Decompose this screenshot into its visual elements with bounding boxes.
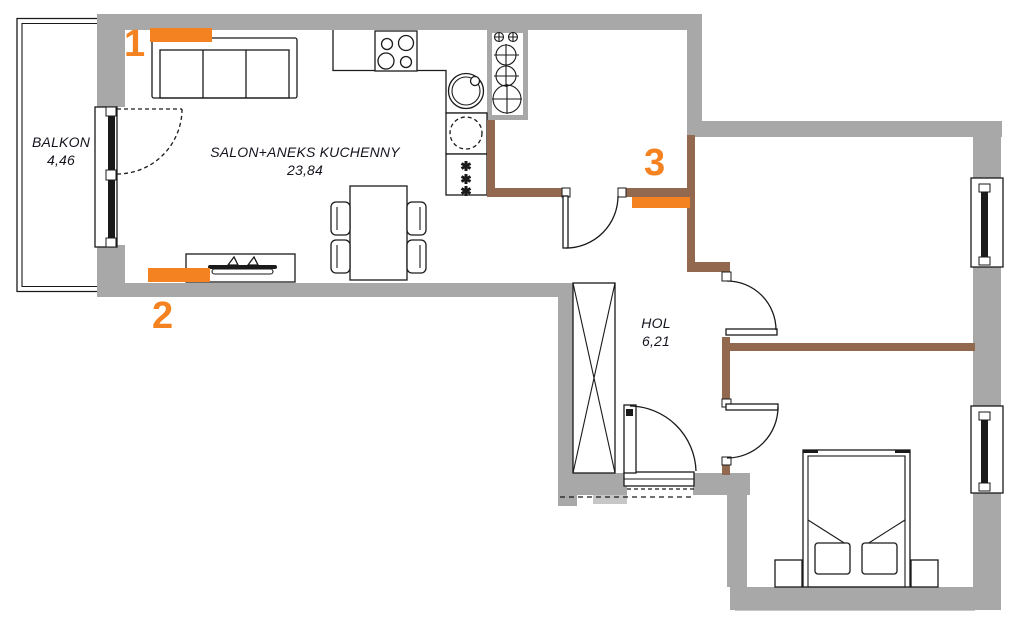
bed-icon: [803, 450, 910, 587]
marker-1-highlight[interactable]: [150, 28, 212, 42]
sofa-icon: [152, 38, 297, 98]
washing-machine-icon: [446, 113, 487, 154]
window-icon-bottom: [971, 406, 1003, 493]
marker-2-highlight[interactable]: [148, 268, 210, 282]
balcony-window-door: [95, 107, 182, 247]
marker-2-number: 2: [152, 297, 173, 335]
window-icon-top: [971, 178, 1003, 267]
dining-table-icon: [350, 186, 407, 280]
room-area: 23,84: [175, 161, 435, 179]
room-label-hol: HOL 6,21: [616, 314, 696, 351]
riser-shaft-icon: [487, 28, 528, 120]
bathroom-door: [562, 188, 626, 248]
room-label-salon: SALON+ANEKS KUCHENNY 23,84: [175, 143, 435, 180]
marker-3-number: 3: [644, 144, 665, 182]
fridge-icon: [446, 154, 487, 196]
nightstand-icon-left: [775, 560, 802, 587]
room1-door: [722, 272, 777, 335]
marker-3-highlight[interactable]: [632, 197, 690, 208]
wardrobe-icon: [573, 283, 615, 473]
room-label-balkon: BALKON 4,46: [18, 133, 104, 170]
cooktop-icon: [375, 31, 417, 71]
marker-1-number: 1: [124, 25, 145, 63]
room-name: BALKON: [18, 133, 104, 151]
room-area: 4,46: [18, 151, 104, 169]
floor-plan-canvas: BALKON 4,46 SALON+ANEKS KUCHENNY 23,84 H…: [0, 0, 1019, 624]
room2-door: [722, 399, 778, 465]
room-area: 6,21: [616, 332, 696, 350]
nightstand-icon-right: [911, 560, 938, 587]
sink-icon: [449, 74, 484, 109]
room-name: SALON+ANEKS KUCHENNY: [175, 143, 435, 161]
room-name: HOL: [616, 314, 696, 332]
